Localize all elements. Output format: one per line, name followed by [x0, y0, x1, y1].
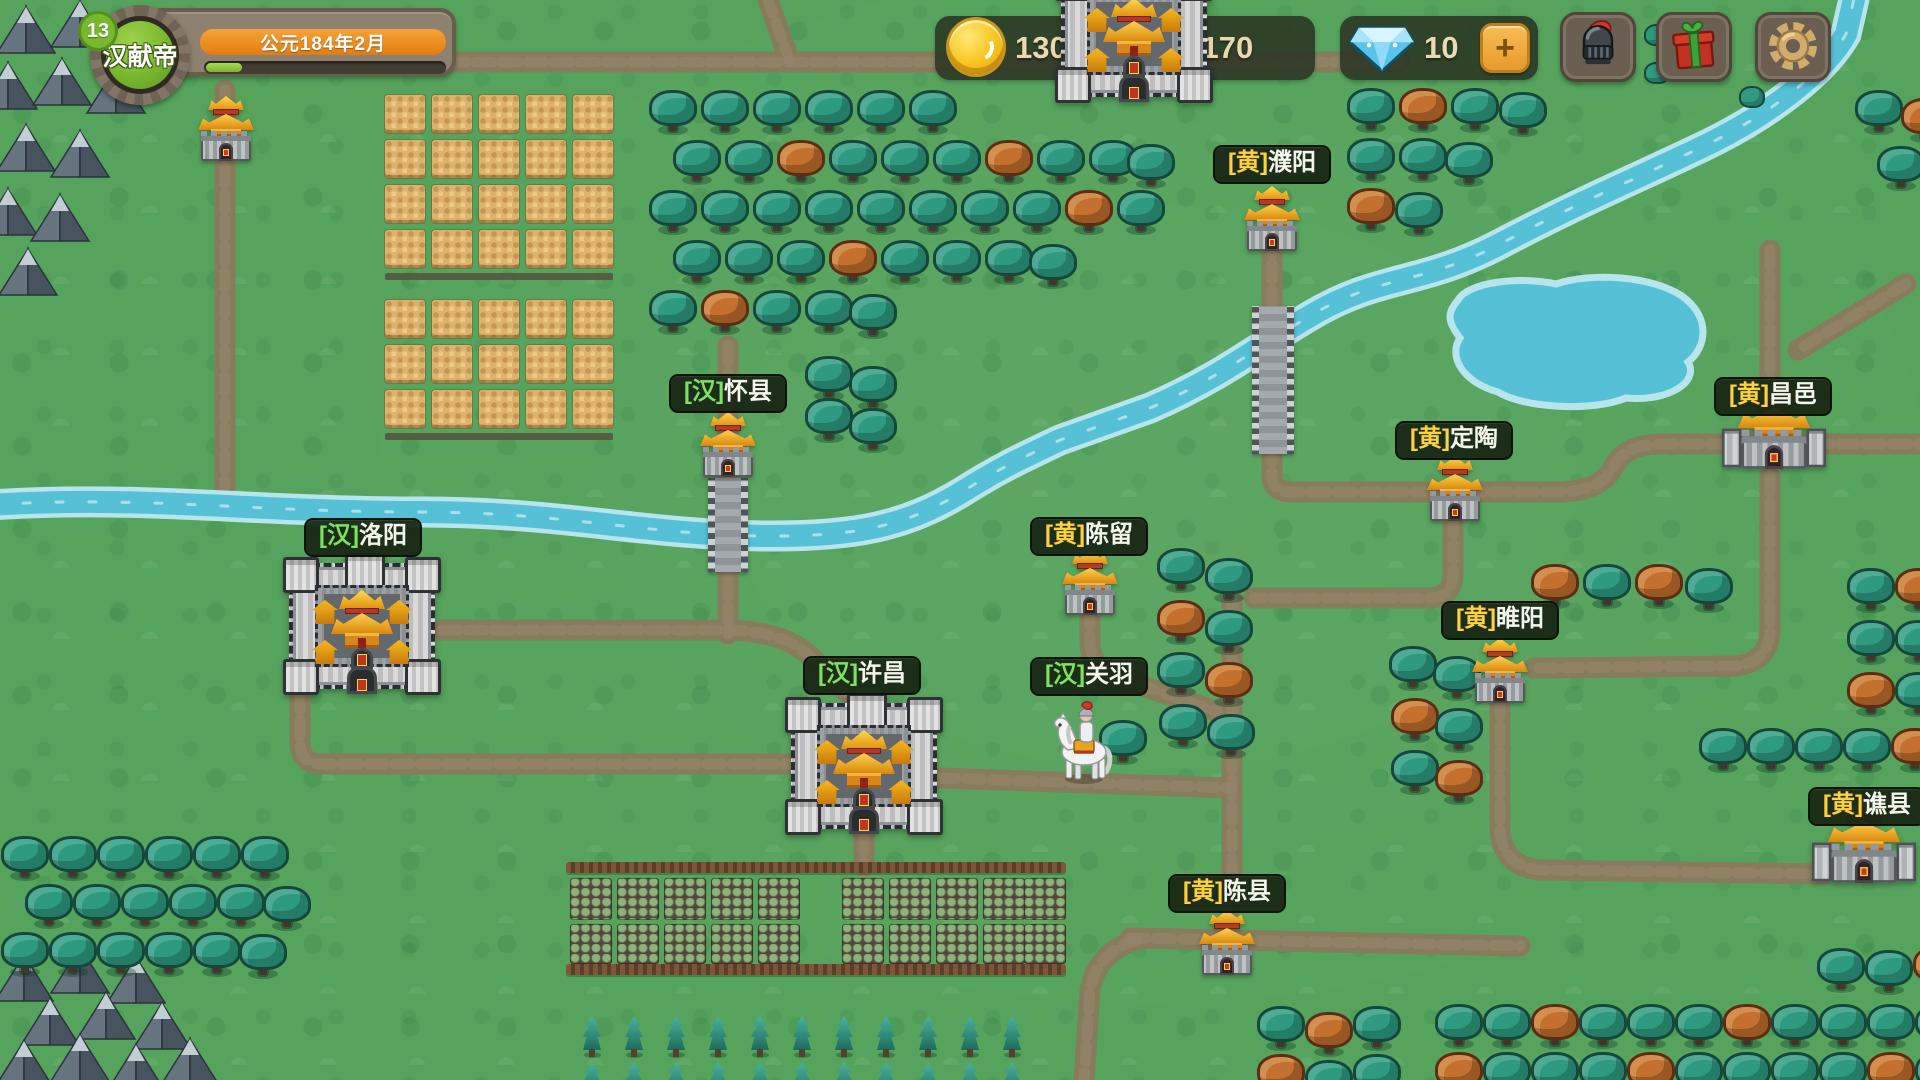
tree-icon	[1914, 948, 1920, 992]
tree-icon	[194, 934, 240, 978]
tree-icon	[1902, 100, 1920, 144]
tree-icon	[1158, 602, 1204, 646]
pine-tree-icon	[709, 1062, 727, 1080]
town-huaixian[interactable]	[700, 412, 756, 478]
tree-icon	[1118, 192, 1164, 236]
tree-icon	[754, 92, 800, 136]
tree-icon	[674, 142, 720, 186]
tree-icon	[1772, 1006, 1818, 1050]
tree-icon	[702, 92, 748, 136]
vegetable-plot	[570, 924, 612, 964]
tree-icon	[1868, 1006, 1914, 1050]
tree-icon	[806, 292, 852, 336]
tree-icon	[98, 838, 144, 882]
town-dingtao[interactable]	[1427, 456, 1483, 522]
wheat-field-tile	[573, 140, 613, 178]
mountain-icon	[0, 1041, 24, 1080]
tree-icon	[242, 838, 288, 882]
mountain-icon	[51, 1, 80, 47]
tree-icon	[726, 142, 772, 186]
mountain-face	[80, 1035, 109, 1080]
mountain-snowcap	[153, 1003, 171, 1019]
mountain-face	[28, 249, 57, 295]
mountain-face	[136, 1045, 165, 1080]
pine-tree-icon	[583, 1062, 601, 1080]
wheat-field-tile	[385, 230, 425, 268]
tree-icon	[1868, 1054, 1914, 1080]
tree-icon	[1030, 246, 1076, 290]
faction-tag: [黄]	[1045, 521, 1085, 548]
tree-icon	[850, 368, 896, 412]
tree-icon	[50, 838, 96, 882]
tree-icon	[1892, 730, 1920, 774]
city-topcity[interactable]	[1056, 0, 1212, 102]
tree-icon	[1724, 1006, 1770, 1050]
pine-tree-icon	[583, 1016, 601, 1060]
tree-icon	[1584, 566, 1630, 610]
tree-icon	[1128, 146, 1174, 190]
wheat-field-tile	[479, 185, 519, 223]
stone-bridge	[708, 478, 748, 572]
wheat-field-tile	[526, 95, 566, 133]
vegetable-plot	[936, 878, 978, 920]
gear-icon	[1765, 18, 1821, 77]
dirt-road	[1500, 700, 1824, 874]
mountain-icon	[0, 7, 26, 53]
tree-icon	[650, 292, 696, 336]
wheat-field-tile	[479, 95, 519, 133]
vegetable-plot	[983, 878, 1025, 920]
map-label-suiyang[interactable]: [黄]睢阳	[1441, 601, 1559, 640]
tree-icon	[1628, 1006, 1674, 1050]
tree-icon	[702, 192, 748, 236]
mountain-snowcap	[19, 249, 37, 265]
tree-icon	[1636, 566, 1682, 610]
pine-tree-icon	[835, 1016, 853, 1060]
tree-icon	[1258, 1008, 1304, 1052]
tree-icon	[1580, 1006, 1626, 1050]
map-label-luoyang[interactable]: [汉]洛阳	[304, 518, 422, 557]
map-label-xuchang[interactable]: [汉]许昌	[803, 656, 921, 695]
map-label-chenliu[interactable]: [黄]陈留	[1030, 517, 1148, 556]
tree-icon	[674, 242, 720, 286]
tree-icon	[1820, 1006, 1866, 1050]
vegetable-plot	[983, 924, 1025, 964]
pine-tree-icon	[919, 1062, 937, 1080]
tree-icon	[1436, 1006, 1482, 1050]
tree-icon	[74, 886, 120, 930]
farm-fence	[566, 862, 1066, 873]
pine-tree-icon	[1003, 1016, 1021, 1060]
tree-icon	[1158, 654, 1204, 698]
pine-tree-icon	[877, 1016, 895, 1060]
tree-icon	[910, 192, 956, 236]
tree-icon	[1848, 622, 1894, 666]
tree-icon	[122, 886, 168, 930]
tree-icon	[146, 934, 192, 978]
tree-icon	[1066, 192, 1112, 236]
pine-tree-icon	[751, 1062, 769, 1080]
pine-tree-icon	[835, 1062, 853, 1080]
place-name: 谯县	[1863, 791, 1911, 818]
tree-icon	[702, 292, 748, 336]
tree-icon	[806, 358, 852, 402]
tree-icon	[1206, 664, 1252, 708]
mountain-icon	[21, 999, 50, 1045]
tree-icon	[146, 838, 192, 882]
wheat-field-tile	[573, 230, 613, 268]
vegetable-plot	[936, 924, 978, 964]
wheat-field-tile	[385, 95, 425, 133]
tree-icon	[1446, 144, 1492, 188]
wheat-field-tile	[385, 185, 425, 223]
pine-tree-icon	[709, 1016, 727, 1060]
wheat-field-tile	[526, 140, 566, 178]
stone-bridge	[1252, 306, 1294, 454]
tree-icon	[650, 92, 696, 136]
wheat-field-tile	[432, 140, 472, 178]
tree-icon	[1772, 1054, 1818, 1080]
tree-icon	[754, 292, 800, 336]
pine-tree-icon	[625, 1062, 643, 1080]
tree-icon	[986, 142, 1032, 186]
tree-icon	[1748, 730, 1794, 774]
tree-icon	[170, 886, 216, 930]
mountain-icon	[33, 59, 62, 105]
wheat-field-tile	[573, 345, 613, 383]
map-label-guanyu[interactable]: [汉]关羽	[1030, 657, 1148, 696]
town-chenliu[interactable]	[1062, 550, 1118, 616]
tree-icon	[264, 888, 310, 932]
mountain-snowcap	[17, 125, 35, 141]
wheat-field-tile	[573, 300, 613, 338]
tree-icon	[1390, 648, 1436, 692]
tree-icon	[910, 92, 956, 136]
level-badge: 13	[78, 11, 118, 51]
vegetable-plot	[842, 924, 884, 964]
tree-icon	[1396, 194, 1442, 238]
wheat-field-tile	[479, 300, 519, 338]
map-label-dingtao[interactable]: [黄]定陶	[1395, 421, 1513, 460]
place-name: 睢阳	[1496, 605, 1544, 632]
tree-icon	[1436, 762, 1482, 806]
mountain-icon	[51, 131, 80, 177]
tree-icon	[1484, 1006, 1530, 1050]
faction-tag: [黄]	[1823, 791, 1863, 818]
vegetable-plot	[711, 878, 753, 920]
tree-icon	[1580, 1054, 1626, 1080]
wheat-field-tile	[479, 345, 519, 383]
gem-icon	[1350, 22, 1414, 74]
tree-icon	[1348, 190, 1394, 234]
tree-icon	[830, 242, 876, 286]
vegetable-plot	[570, 878, 612, 920]
vegetable-plot	[617, 878, 659, 920]
wheat-field-tile	[385, 300, 425, 338]
vegetable-plot	[664, 924, 706, 964]
vegetable-plot	[842, 878, 884, 920]
wheat-field-tile	[385, 390, 425, 428]
tree-icon	[1676, 1006, 1722, 1050]
wheat-field-tile	[573, 185, 613, 223]
tree-icon	[778, 142, 824, 186]
tree-icon	[1400, 140, 1446, 184]
mountain-icon	[0, 125, 26, 171]
faction-tag: [黄]	[1228, 149, 1268, 176]
tree-icon	[850, 410, 896, 454]
vegetable-plot	[1024, 878, 1066, 920]
tree-icon	[858, 92, 904, 136]
town-chenxian[interactable]	[1199, 910, 1255, 976]
tree-icon	[806, 400, 852, 444]
tree-icon	[1014, 192, 1060, 236]
dirt-road-center	[1798, 284, 1906, 350]
faction-tag: [汉]	[1045, 661, 1085, 688]
player-avatar[interactable]: 汉献帝 13	[90, 5, 190, 105]
tree-icon	[806, 192, 852, 236]
tree-icon	[1436, 710, 1482, 754]
wheat-field-tile	[432, 95, 472, 133]
faction-tag: [汉]	[319, 522, 359, 549]
helmet-icon	[1570, 18, 1626, 77]
coin-icon	[949, 20, 1003, 74]
pine-tree-icon	[877, 1062, 895, 1080]
xp-bar	[204, 61, 446, 74]
wheat-field-tile	[385, 345, 425, 383]
tree-icon	[2, 934, 48, 978]
mountain-face	[190, 1039, 219, 1080]
wheat-field-tile	[573, 95, 613, 133]
tree-icon	[1916, 1054, 1920, 1080]
tree-icon	[726, 242, 772, 286]
pine-tree-icon	[919, 1016, 937, 1060]
mountain-icon	[0, 249, 28, 295]
faction-tag: [黄]	[1456, 605, 1496, 632]
tree-icon	[1306, 1014, 1352, 1058]
tree-icon	[1818, 950, 1864, 994]
dirt-road	[1254, 518, 1453, 598]
tree-icon	[858, 192, 904, 236]
tree-icon	[1436, 1054, 1482, 1080]
mountain-icon	[77, 993, 106, 1039]
game-map[interactable]: [黄]濮阳[汉]怀县[黄]陈留[黄]定陶[黄]睢阳[黄]陈县[黄]昌邑[黄]谯县…	[0, 0, 1920, 1080]
pine-tree-icon	[625, 1016, 643, 1060]
gift-icon	[1666, 18, 1722, 77]
tree-icon	[1532, 1054, 1578, 1080]
place-name: 关羽	[1085, 661, 1133, 688]
place-name: 许昌	[858, 660, 906, 687]
mountain-face	[8, 189, 37, 235]
vegetable-plot	[617, 924, 659, 964]
tree-icon	[1676, 1054, 1722, 1080]
faction-tag: [黄]	[1183, 878, 1223, 905]
tree-icon	[1452, 90, 1498, 134]
faction-tag: [汉]	[818, 660, 858, 687]
wheat-field-tile	[526, 230, 566, 268]
tree-icon	[1848, 570, 1894, 614]
tree-icon	[1848, 674, 1894, 718]
pine-tree-icon	[793, 1016, 811, 1060]
tree-icon	[1348, 140, 1394, 184]
mountain-face	[26, 125, 55, 171]
tree-icon	[778, 242, 824, 286]
tree-icon	[882, 242, 928, 286]
wheat-field-tile	[526, 185, 566, 223]
vegetable-plot	[758, 878, 800, 920]
tree-icon	[1158, 550, 1204, 594]
place-name: 怀县	[724, 378, 772, 405]
map-label-puyang[interactable]: [黄]濮阳	[1213, 145, 1331, 184]
mountain-snowcap	[17, 7, 35, 23]
tree-icon	[986, 242, 1032, 286]
vegetable-plot	[889, 924, 931, 964]
tree-icon	[1348, 90, 1394, 134]
pine-tree-icon	[751, 1016, 769, 1060]
pine-tree-icon	[793, 1062, 811, 1080]
field-border	[385, 273, 613, 280]
tree-icon	[1392, 752, 1438, 796]
place-name: 濮阳	[1268, 149, 1316, 176]
tree-icon	[754, 192, 800, 236]
dirt-road-center	[1254, 518, 1453, 598]
wheat-field-tile	[432, 230, 472, 268]
gift-button[interactable]	[1656, 12, 1732, 82]
tree-icon	[1500, 94, 1546, 138]
tree-icon	[1700, 730, 1746, 774]
lake	[1450, 277, 1703, 406]
farm-fence	[566, 964, 1066, 975]
town-northtown[interactable]	[198, 96, 254, 162]
mountain-face	[26, 7, 55, 53]
field-border	[385, 433, 613, 440]
place-name: 陈县	[1223, 878, 1271, 905]
wheat-field-tile	[385, 140, 425, 178]
tree-icon	[1896, 622, 1920, 666]
gems-panel: 10 +	[1340, 16, 1538, 80]
pine-tree-icon	[961, 1016, 979, 1060]
wheat-field-tile	[479, 140, 519, 178]
tree-icon	[26, 886, 72, 930]
mountain-snowcap	[53, 59, 71, 75]
mountain-face	[24, 1041, 53, 1080]
hero-button[interactable]	[1560, 12, 1636, 82]
gem-amount: 10	[1424, 30, 1458, 66]
tree-icon	[1896, 674, 1920, 718]
wheat-field-tile	[526, 390, 566, 428]
wheat-field-tile	[432, 185, 472, 223]
pine-tree-icon	[961, 1062, 979, 1080]
map-label-chenxian[interactable]: [黄]陈县	[1168, 874, 1286, 913]
add-gems-button[interactable]: +	[1480, 23, 1530, 73]
tree-icon	[1258, 1056, 1304, 1080]
vegetable-plot	[889, 878, 931, 920]
vegetable-plot	[1024, 924, 1066, 964]
tree-icon	[1532, 1006, 1578, 1050]
mountain-face	[62, 59, 91, 105]
tree-icon	[240, 936, 286, 980]
tree-icon	[1206, 560, 1252, 604]
tree-icon	[1878, 148, 1920, 192]
pine-tree-icon	[667, 1016, 685, 1060]
wheat-field-tile	[479, 230, 519, 268]
place-name: 定陶	[1450, 425, 1498, 452]
tree-icon	[650, 192, 696, 236]
dirt-road-center	[1500, 700, 1824, 874]
map-label-changyi[interactable]: [黄]昌邑	[1714, 377, 1832, 416]
tree-icon	[1686, 570, 1732, 614]
tree-icon	[218, 886, 264, 930]
tree-icon	[2, 838, 48, 882]
map-label-huaixian[interactable]: [汉]怀县	[669, 374, 787, 413]
tree-icon	[1160, 706, 1206, 750]
tree-icon	[1844, 730, 1890, 774]
tree-icon	[50, 934, 96, 978]
mountain-icon	[31, 195, 60, 241]
tree-icon	[1206, 612, 1252, 656]
tree-icon	[934, 242, 980, 286]
faction-tag: [黄]	[1729, 381, 1769, 408]
town-suiyang[interactable]	[1472, 638, 1528, 704]
tree-icon	[850, 296, 896, 340]
player-panel[interactable]: 公元184年2月 汉献帝 13	[140, 8, 456, 76]
tree-icon	[1208, 716, 1254, 760]
faction-tag: [黄]	[1410, 425, 1450, 452]
faction-tag: [汉]	[684, 378, 724, 405]
tree-icon	[1796, 730, 1842, 774]
wheat-field-tile	[432, 300, 472, 338]
tree-icon	[194, 838, 240, 882]
map-label-qiaoxian[interactable]: [黄]谯县	[1808, 787, 1920, 826]
wheat-field-tile	[526, 300, 566, 338]
mountain-face	[60, 195, 89, 241]
city-xuchang[interactable]	[786, 698, 942, 834]
character-guanyu[interactable]	[1048, 700, 1120, 784]
tree-icon	[882, 142, 928, 186]
tree-icon	[1896, 570, 1920, 614]
tree-icon	[1354, 1056, 1400, 1080]
tree-icon	[1866, 952, 1912, 996]
tree-icon	[1820, 1054, 1866, 1080]
xp-fill	[206, 63, 242, 72]
settings-button[interactable]	[1755, 12, 1831, 82]
tree-icon	[1400, 90, 1446, 134]
wheat-field-tile	[526, 345, 566, 383]
tree-icon	[1354, 1008, 1400, 1052]
tree-icon	[1038, 142, 1084, 186]
wheat-field-tile	[432, 390, 472, 428]
mountain-face	[80, 131, 109, 177]
city-luoyang[interactable]	[284, 558, 440, 694]
mountain-face	[50, 999, 79, 1045]
mountain-icon	[107, 1045, 136, 1080]
mountain-icon	[133, 1003, 162, 1049]
mountain-snowcap	[51, 195, 69, 211]
tree-icon	[830, 142, 876, 186]
town-puyang[interactable]	[1244, 186, 1300, 252]
tree-icon	[1484, 1054, 1530, 1080]
tree-icon	[98, 934, 144, 978]
game-date: 公元184年2月	[200, 29, 446, 55]
tree-icon	[1856, 92, 1902, 136]
wheat-field-tile	[479, 390, 519, 428]
tree-icon	[806, 92, 852, 136]
mountain-face	[8, 63, 37, 109]
bush-icon	[1740, 86, 1764, 108]
vegetable-plot	[711, 924, 753, 964]
place-name: 昌邑	[1769, 381, 1817, 408]
tree-icon	[1306, 1062, 1352, 1080]
mountain-snowcap	[71, 131, 89, 147]
